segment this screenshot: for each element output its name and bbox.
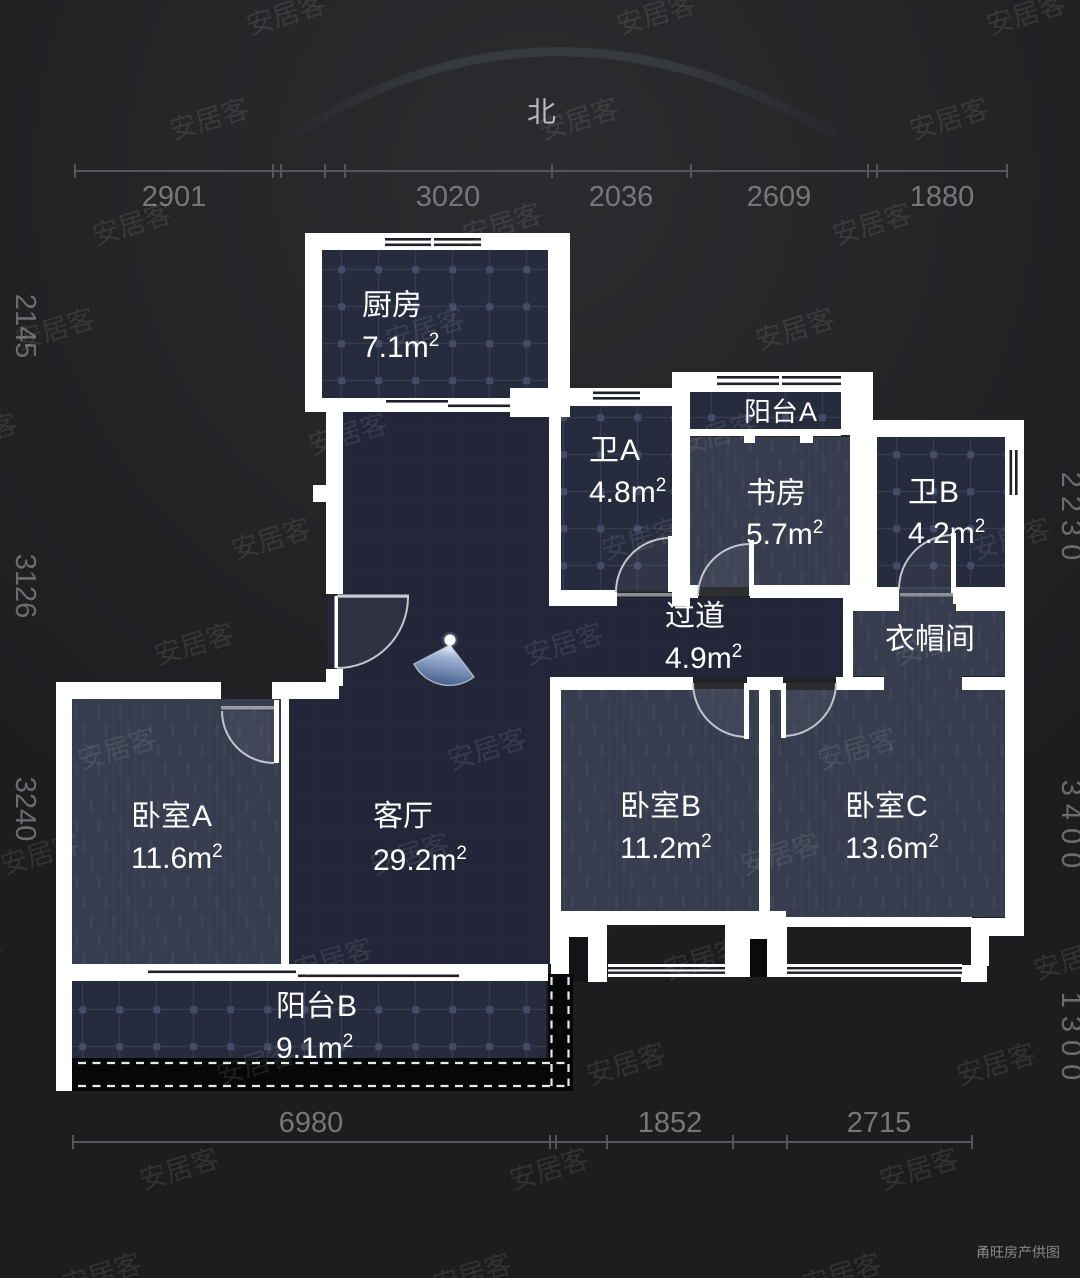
svg-text:3126: 3126 xyxy=(9,554,41,619)
svg-text:3020: 3020 xyxy=(416,181,481,213)
svg-text:4.2m2: 4.2m2 xyxy=(908,516,985,550)
svg-text:2715: 2715 xyxy=(847,1107,912,1139)
svg-text:11.6m2: 11.6m2 xyxy=(131,841,223,875)
svg-text:2230: 2230 xyxy=(1055,472,1080,569)
svg-text:11.2m2: 11.2m2 xyxy=(620,831,712,865)
svg-text:4.9m2: 4.9m2 xyxy=(665,641,742,675)
svg-text:B: B xyxy=(681,790,701,823)
svg-text:2036: 2036 xyxy=(589,181,654,213)
svg-text:7.1m2: 7.1m2 xyxy=(362,330,439,364)
svg-text:1300: 1300 xyxy=(1055,992,1080,1089)
svg-text:9.1m2: 9.1m2 xyxy=(276,1031,353,1065)
svg-text:B: B xyxy=(939,476,959,509)
svg-text:6980: 6980 xyxy=(279,1107,344,1139)
svg-text:A: A xyxy=(799,397,817,427)
svg-text:1880: 1880 xyxy=(910,181,975,213)
svg-text:2609: 2609 xyxy=(747,181,812,213)
svg-text:C: C xyxy=(906,790,928,823)
svg-text:B: B xyxy=(337,990,357,1023)
svg-text:5.7m2: 5.7m2 xyxy=(746,517,823,551)
svg-text:13.6m2: 13.6m2 xyxy=(845,831,939,865)
svg-text:1852: 1852 xyxy=(638,1107,703,1139)
svg-text:4.8m2: 4.8m2 xyxy=(589,475,666,509)
svg-text:3240: 3240 xyxy=(9,777,41,842)
svg-text:A: A xyxy=(620,434,640,467)
svg-text:3400: 3400 xyxy=(1055,780,1080,877)
svg-text:A: A xyxy=(192,800,212,833)
svg-text:29.2m2: 29.2m2 xyxy=(373,843,467,877)
